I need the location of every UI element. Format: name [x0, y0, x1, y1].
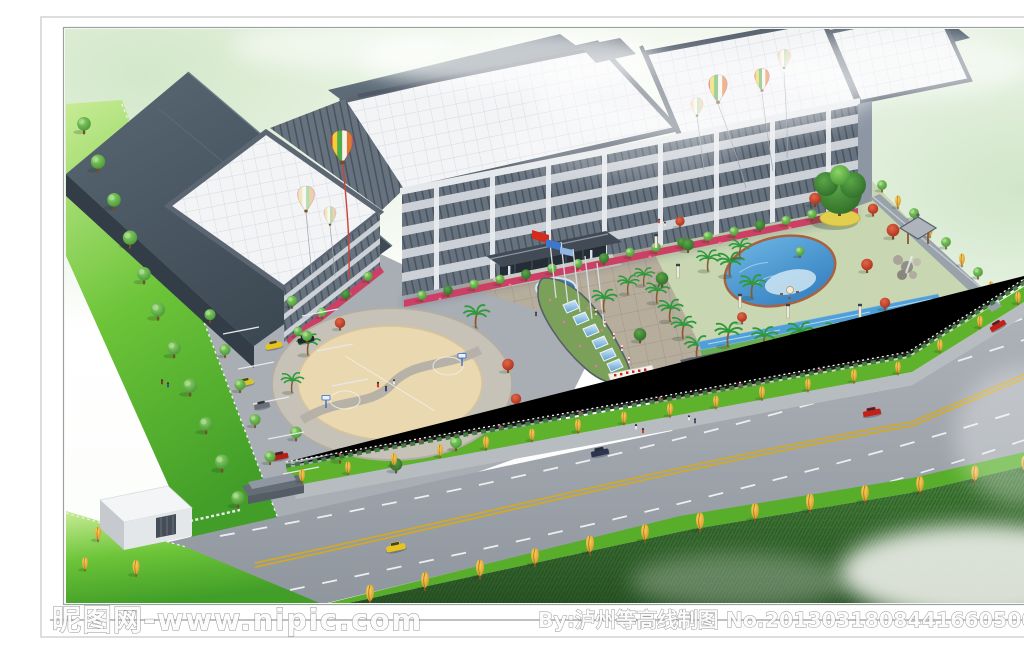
rendering-canvas: 昵图网-www.nipic.com By:泸州等高线制图 No.20130318…	[40, 16, 1024, 638]
stock-photo-rendering: 昵图网-www.nipic.com By:泸州等高线制图 No.20130318…	[40, 16, 1024, 638]
watermark-site-text: 昵图网-www.nipic.com	[52, 603, 423, 637]
watermark: 昵图网-www.nipic.com By:泸州等高线制图 No.20130318…	[50, 603, 1024, 637]
parasol	[787, 287, 794, 294]
watermark-credit-text: By:泸州等高线制图 No.20130318084416605000	[538, 608, 1024, 632]
